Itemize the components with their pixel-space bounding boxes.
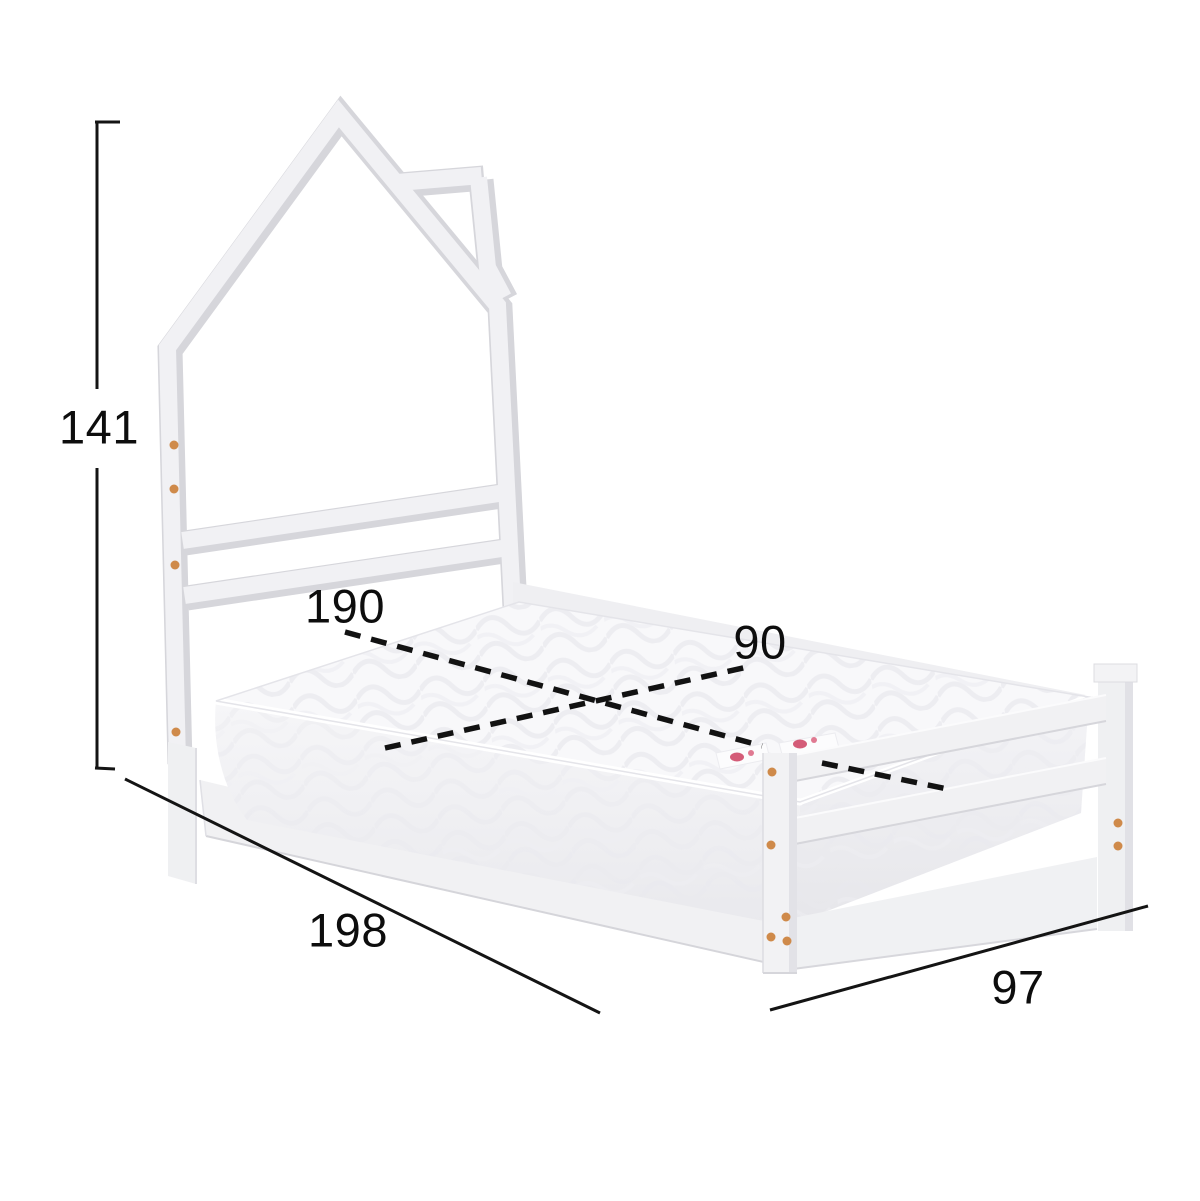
crossbar-upper (183, 493, 506, 541)
chimney-top (398, 176, 482, 183)
dowel-icon (768, 768, 777, 777)
tag-logo-icon (730, 753, 744, 762)
far-post-cap (1094, 664, 1137, 682)
dowel-icon (170, 485, 179, 494)
far-post-shade (1125, 669, 1133, 931)
tag-logo-icon (748, 750, 754, 756)
height-dimension-label: 141 (59, 400, 139, 455)
tag-logo-icon (811, 737, 817, 743)
dowel-icon (782, 913, 791, 922)
bed-illustration-svg (0, 0, 1200, 1201)
dowel-icon (172, 728, 181, 737)
bed-dimension-diagram: 141 190 90 198 97 (0, 0, 1200, 1201)
mattress-width-dimension-label: 90 (733, 615, 786, 670)
mattress-length-dimension-label: 190 (305, 579, 385, 634)
dowel-icon (783, 937, 792, 946)
overall-length-dimension-label: 198 (308, 903, 388, 958)
tag-logo-icon (793, 740, 807, 749)
height-line-bottom-tick (95, 768, 115, 769)
dowel-icon (170, 441, 179, 450)
mattress (215, 602, 1089, 926)
dowel-icon (171, 561, 180, 570)
dowel-icon (1114, 842, 1123, 851)
dowel-icon (767, 933, 776, 942)
overall-width-dimension-label: 97 (991, 960, 1044, 1015)
dowel-icon (1114, 819, 1123, 828)
dowel-icon (767, 841, 776, 850)
